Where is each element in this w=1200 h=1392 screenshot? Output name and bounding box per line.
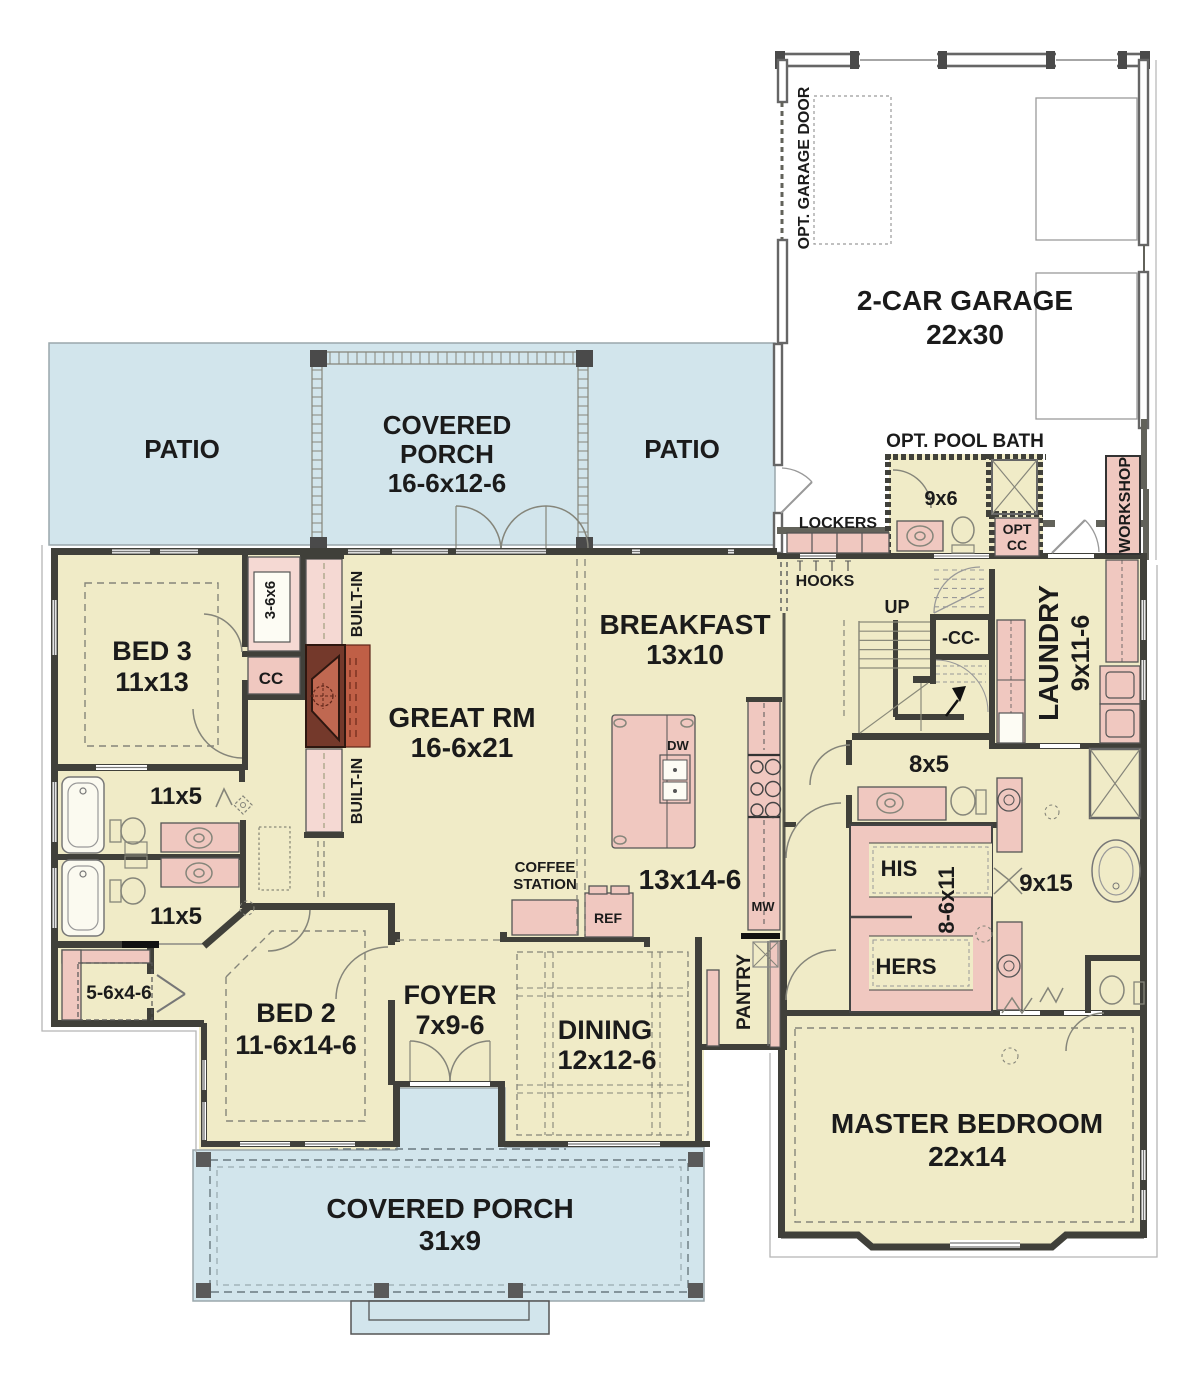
svg-text:8x5: 8x5 bbox=[909, 751, 949, 778]
svg-text:CC: CC bbox=[1007, 537, 1027, 553]
svg-text:PANTRY: PANTRY bbox=[734, 954, 755, 1030]
svg-text:HOOKS: HOOKS bbox=[796, 573, 855, 590]
svg-text:MASTER BEDROOM: MASTER BEDROOM bbox=[831, 1108, 1103, 1139]
svg-text:COVERED: COVERED bbox=[383, 410, 512, 440]
svg-text:8-6x11: 8-6x11 bbox=[934, 866, 959, 933]
svg-text:COFFEE: COFFEE bbox=[515, 859, 576, 876]
svg-text:9x15: 9x15 bbox=[1019, 870, 1072, 897]
svg-text:FOYER: FOYER bbox=[403, 980, 496, 1010]
svg-text:UP: UP bbox=[884, 597, 909, 617]
svg-text:11x13: 11x13 bbox=[115, 667, 189, 697]
svg-text:GREAT RM: GREAT RM bbox=[388, 702, 535, 733]
svg-text:PORCH: PORCH bbox=[400, 439, 494, 469]
svg-text:OPT. GARAGE DOOR: OPT. GARAGE DOOR bbox=[796, 86, 813, 249]
svg-text:11x5: 11x5 bbox=[150, 783, 202, 810]
svg-text:16-6x12-6: 16-6x12-6 bbox=[388, 468, 507, 498]
svg-text:22x30: 22x30 bbox=[926, 319, 1004, 350]
svg-text:DINING: DINING bbox=[558, 1015, 653, 1045]
svg-text:BED 2: BED 2 bbox=[256, 998, 336, 1028]
svg-text:31x9: 31x9 bbox=[419, 1225, 481, 1256]
svg-text:STATION: STATION bbox=[513, 876, 577, 893]
svg-text:PATIO: PATIO bbox=[644, 434, 720, 464]
svg-text:2-CAR GARAGE: 2-CAR GARAGE bbox=[857, 285, 1073, 316]
svg-text:9x11-6: 9x11-6 bbox=[1067, 615, 1095, 691]
svg-text:7x9-6: 7x9-6 bbox=[415, 1010, 484, 1040]
svg-text:5-6x4-6: 5-6x4-6 bbox=[86, 983, 152, 1004]
svg-text:3-6x6: 3-6x6 bbox=[262, 581, 279, 619]
svg-text:9x6: 9x6 bbox=[924, 488, 957, 510]
svg-text:CC: CC bbox=[259, 669, 284, 688]
svg-text:COVERED PORCH: COVERED PORCH bbox=[326, 1193, 573, 1224]
svg-text:PATIO: PATIO bbox=[144, 434, 220, 464]
svg-text:BUILT-IN: BUILT-IN bbox=[349, 571, 366, 637]
svg-text:11x5: 11x5 bbox=[150, 903, 202, 930]
svg-text:BREAKFAST: BREAKFAST bbox=[599, 609, 770, 640]
svg-text:BUILT-IN: BUILT-IN bbox=[349, 758, 366, 824]
svg-text:DW: DW bbox=[667, 738, 689, 753]
svg-text:22x14: 22x14 bbox=[928, 1141, 1006, 1172]
svg-text:BED 3: BED 3 bbox=[112, 636, 192, 666]
svg-text:13x14-6: 13x14-6 bbox=[639, 864, 742, 895]
svg-text:-CC-: -CC- bbox=[942, 628, 980, 648]
svg-text:12x12-6: 12x12-6 bbox=[557, 1045, 656, 1075]
svg-text:LOCKERS: LOCKERS bbox=[799, 515, 878, 532]
svg-text:OPT. POOL BATH: OPT. POOL BATH bbox=[886, 431, 1044, 452]
svg-text:HIS: HIS bbox=[881, 856, 918, 881]
svg-text:HERS: HERS bbox=[875, 954, 936, 979]
svg-text:WORKSHOP: WORKSHOP bbox=[1117, 457, 1134, 553]
svg-text:MW: MW bbox=[751, 899, 775, 914]
svg-text:16-6x21: 16-6x21 bbox=[411, 732, 514, 763]
svg-text:13x10: 13x10 bbox=[646, 639, 724, 670]
svg-text:LAUNDRY: LAUNDRY bbox=[1033, 585, 1064, 721]
svg-text:11-6x14-6: 11-6x14-6 bbox=[235, 1030, 357, 1060]
svg-text:REF: REF bbox=[594, 910, 622, 926]
svg-text:OPT: OPT bbox=[1003, 521, 1032, 537]
